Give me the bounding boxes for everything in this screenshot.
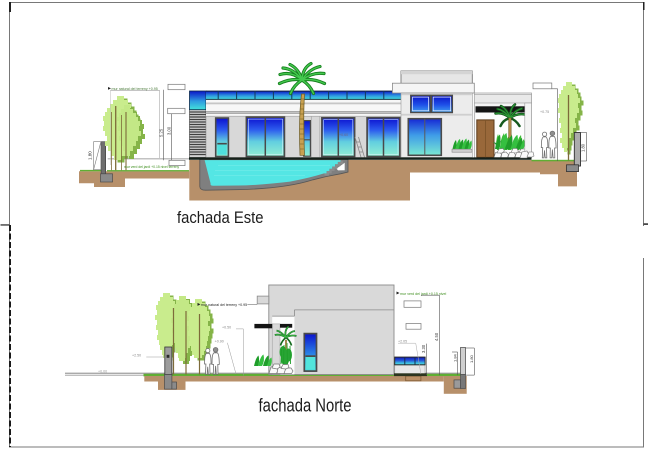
svg-text:+0.60: +0.60 <box>339 133 348 137</box>
svg-text:1.80: 1.80 <box>88 151 93 160</box>
svg-text:1.80: 1.80 <box>469 354 474 363</box>
svg-text:4.50: 4.50 <box>434 332 439 341</box>
svg-text:+2.50: +2.50 <box>132 354 141 358</box>
svg-text:5.25: 5.25 <box>159 128 164 137</box>
svg-text:1.80: 1.80 <box>581 143 586 152</box>
svg-text:fachada Norte: fachada Norte <box>259 395 352 415</box>
svg-text:mur natural del terreny +0.95: mur natural del terreny +0.95 <box>201 303 247 307</box>
svg-text:+0.00: +0.00 <box>98 370 107 374</box>
svg-text:+0.50: +0.50 <box>222 326 231 330</box>
svg-text:3.00: 3.00 <box>167 126 172 135</box>
svg-text:1.84: 1.84 <box>452 353 457 362</box>
svg-text:fachada Este: fachada Este <box>177 208 264 227</box>
svg-text:+0.75: +0.75 <box>540 110 549 114</box>
svg-text:+0.90: +0.90 <box>215 340 224 344</box>
svg-text:3.30: 3.30 <box>421 344 426 353</box>
svg-text:+2.05: +2.05 <box>398 339 407 343</box>
